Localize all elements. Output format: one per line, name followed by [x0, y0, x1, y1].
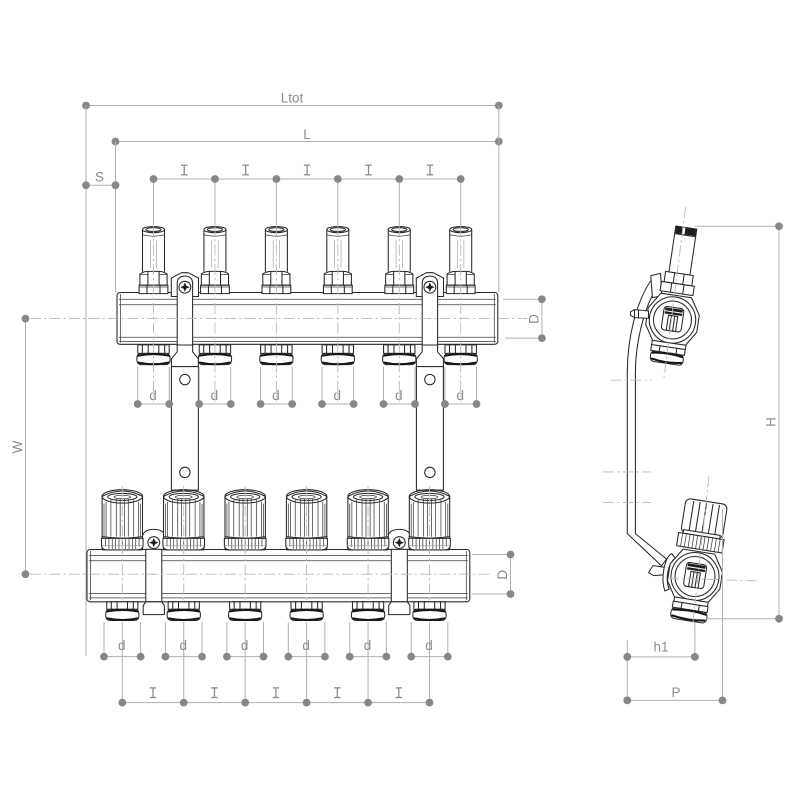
svg-text:d: d: [302, 638, 310, 653]
svg-text:H: H: [764, 417, 779, 427]
svg-text:d: d: [211, 388, 219, 403]
svg-text:d: d: [149, 388, 157, 403]
svg-text:S: S: [95, 169, 104, 184]
svg-text:d: d: [118, 638, 126, 653]
svg-text:L: L: [303, 127, 311, 142]
svg-text:h1: h1: [653, 639, 668, 654]
svg-text:W: W: [10, 440, 25, 453]
svg-text:D: D: [495, 570, 510, 580]
svg-text:d: d: [395, 388, 403, 403]
svg-text:d: d: [179, 638, 187, 653]
svg-text:d: d: [425, 638, 433, 653]
svg-text:d: d: [272, 388, 280, 403]
svg-text:d: d: [241, 638, 249, 653]
svg-text:d: d: [334, 388, 342, 403]
svg-text:d: d: [456, 388, 464, 403]
svg-text:d: d: [364, 638, 372, 653]
svg-text:P: P: [671, 685, 680, 700]
svg-text:D: D: [527, 314, 542, 324]
svg-text:Ltot: Ltot: [281, 90, 304, 105]
